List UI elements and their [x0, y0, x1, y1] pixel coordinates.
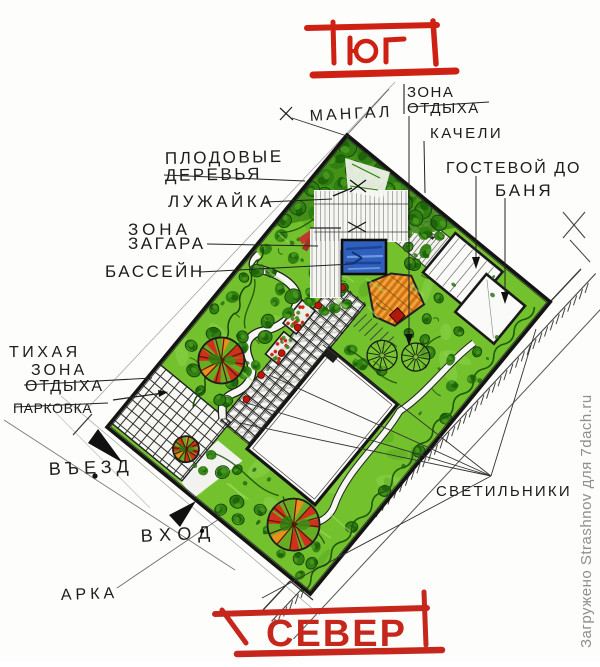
svg-text:БАССЕЙН: БАССЕЙН — [105, 262, 205, 281]
svg-text:КАЧЕЛИ: КАЧЕЛИ — [430, 125, 503, 142]
svg-text:ТИХАЯ: ТИХАЯ — [9, 344, 81, 361]
svg-text:ПАРКОВКА: ПАРКОВКА — [13, 400, 92, 416]
svg-text:ОТДЫХА: ОТДЫХА — [407, 100, 480, 117]
svg-text:ДЕРЕВЬЯ: ДЕРЕВЬЯ — [165, 164, 262, 185]
svg-text:ЗОНА: ЗОНА — [407, 84, 454, 101]
svg-text:БАНЯ: БАНЯ — [495, 181, 554, 200]
svg-text:СВЕТИЛЬНИКИ: СВЕТИЛЬНИКИ — [436, 483, 572, 500]
svg-text:ОТДЫХА: ОТДЫХА — [25, 378, 104, 395]
svg-text:ЛУЖАЙКА: ЛУЖАЙКА — [168, 192, 275, 211]
svg-text:Загружено Strashnov для 7dach.: Загружено Strashnov для 7dach.ru — [578, 394, 595, 648]
svg-text:АРКА: АРКА — [61, 585, 119, 604]
svg-text:ГОСТЕВОЙ ДО: ГОСТЕВОЙ ДО — [446, 158, 582, 177]
svg-text:СЕВЕР: СЕВЕР — [266, 613, 407, 655]
svg-text:ВЪЕЗД: ВЪЕЗД — [48, 456, 134, 479]
svg-text:ЗАГАРА: ЗАГАРА — [128, 234, 206, 253]
svg-text:ЗОНА: ЗОНА — [31, 362, 87, 379]
